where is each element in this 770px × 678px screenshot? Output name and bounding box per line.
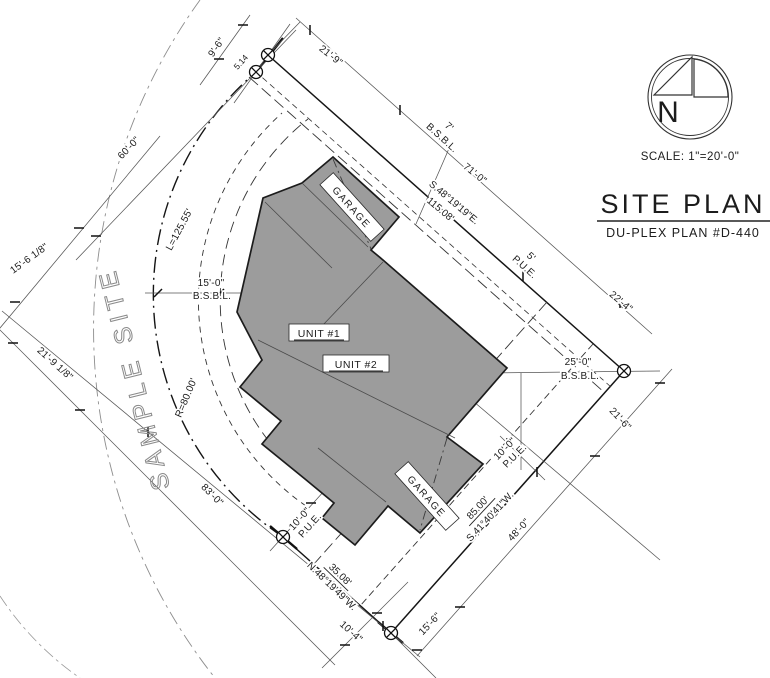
dim-15-6-18: 15'-6 1/8" — [8, 241, 50, 276]
bsbl-label-ne: 7' B.S.B.L. — [424, 112, 469, 155]
scale-text: SCALE: 1"=20'-0" — [641, 151, 740, 163]
title-block: SCALE: 1"=20'-0" SITE PLAN DU-PLEX PLAN … — [597, 151, 770, 240]
sample-watermark: SAMPLE SITE — [93, 263, 176, 493]
pue-label-ne: 5' P.U.E. — [510, 245, 547, 281]
unit1-label: UNIT #1 — [289, 324, 349, 341]
site-plan-page: SAMPLE SITE 9'-6" 5.14 21'-9" 60'-0" 15'… — [0, 0, 770, 678]
unit2-text: UNIT #2 — [335, 359, 377, 371]
bsbl-label-front: B.S.B.L. — [193, 291, 231, 302]
dim-25-0: 25'-0" — [565, 357, 592, 368]
dim-15-6: 15'-6" — [417, 611, 444, 638]
monument-marker — [250, 66, 263, 79]
drawing-title: SITE PLAN — [600, 189, 765, 219]
ne-bearing-label: S.48°19'19"E. 115.08' — [417, 179, 480, 238]
site-plan-drawing: SAMPLE SITE 9'-6" 5.14 21'-9" 60'-0" 15'… — [0, 0, 770, 678]
dim-21-6: 21'-6" — [607, 406, 633, 433]
monument-marker — [618, 365, 631, 378]
dim-5-14: 5.14 — [232, 52, 251, 71]
dim-60-0: 60'-0" — [116, 135, 143, 162]
bsbl-label-rear: B.S.B.L. — [561, 371, 599, 382]
curve-radius-label: R=80.00' — [174, 377, 200, 420]
drawing-subtitle: DU-PLEX PLAN #D-440 — [606, 226, 760, 240]
dim-21-9-18: 21'-9 1/8" — [35, 345, 75, 383]
north-arrow: N — [648, 55, 732, 139]
dim-22-4: 22'-4" — [607, 289, 635, 315]
unit2-label: UNIT #2 — [323, 355, 389, 372]
monument-marker — [277, 531, 290, 544]
dim-71-0: 71'-0" — [461, 161, 489, 186]
monument-marker — [385, 627, 398, 640]
north-arrow-quadrant — [694, 59, 728, 97]
dim-10-4: 10'-4" — [337, 619, 364, 645]
unit1-text: UNIT #1 — [298, 328, 340, 340]
north-letter: N — [657, 96, 679, 129]
street-centerline-arcs — [0, 0, 215, 678]
monument-marker — [262, 49, 275, 62]
dim-83-0: 83'-0" — [198, 482, 225, 509]
curve-length-label: L=125.55' — [164, 207, 195, 253]
dim-9-6: 9'-6" — [206, 36, 227, 60]
pue-label-left: 10'-0" P.U.E. — [287, 503, 324, 540]
dim-21-9: 21'-9" — [317, 43, 345, 68]
dim-15-0: 15'-0" — [198, 278, 225, 289]
pue-label-right: 10'-0" P.U.E. — [492, 434, 529, 471]
